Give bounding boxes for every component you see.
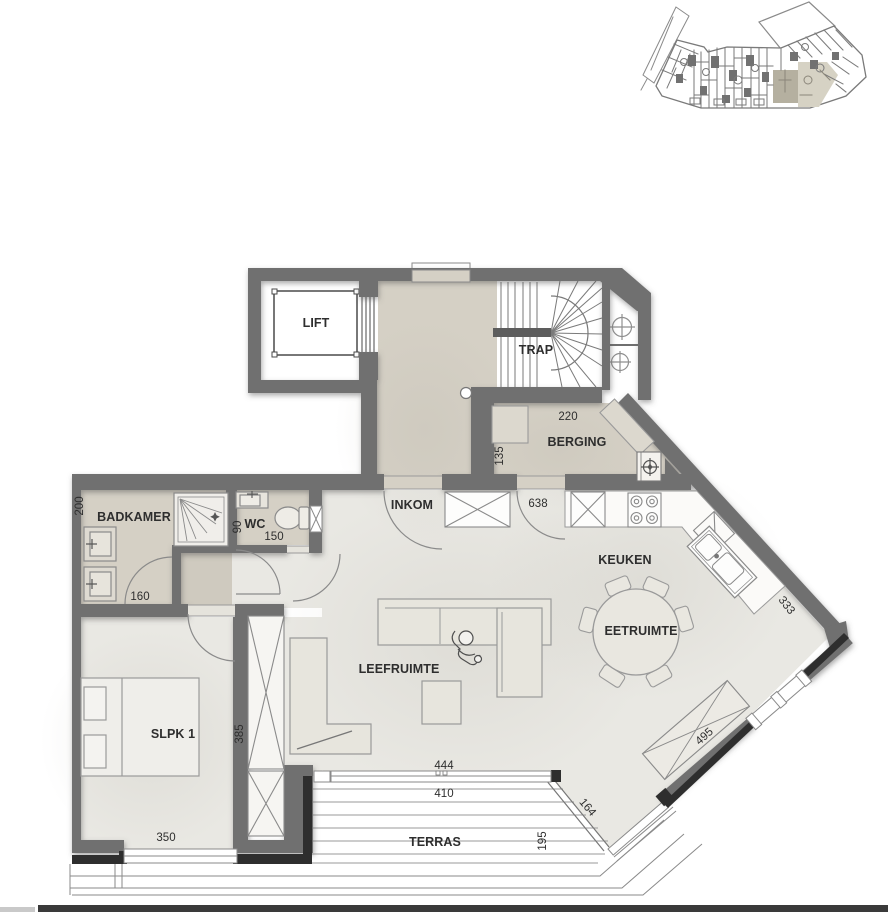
svg-text:160: 160 <box>130 591 149 603</box>
svg-text:WC: WC <box>244 517 265 531</box>
svg-text:135: 135 <box>494 446 506 465</box>
svg-text:385: 385 <box>234 724 246 743</box>
svg-text:90: 90 <box>232 521 244 534</box>
svg-text:EETRUIMTE: EETRUIMTE <box>604 624 677 638</box>
svg-text:350: 350 <box>156 832 175 844</box>
svg-text:444: 444 <box>434 760 454 772</box>
svg-text:LIFT: LIFT <box>303 316 330 330</box>
svg-text:LEEFRUIMTE: LEEFRUIMTE <box>359 662 440 676</box>
svg-text:150: 150 <box>264 531 283 543</box>
svg-text:410: 410 <box>434 788 453 800</box>
svg-text:BERGING: BERGING <box>547 435 606 449</box>
svg-text:SLPK 1: SLPK 1 <box>151 727 195 741</box>
svg-text:220: 220 <box>558 411 577 423</box>
svg-text:638: 638 <box>528 498 547 510</box>
svg-text:TERRAS: TERRAS <box>409 835 461 849</box>
svg-text:195: 195 <box>537 831 549 850</box>
svg-text:KEUKEN: KEUKEN <box>598 553 651 567</box>
svg-text:200: 200 <box>74 496 86 515</box>
svg-text:BADKAMER: BADKAMER <box>97 510 171 524</box>
svg-text:INKOM: INKOM <box>391 498 433 512</box>
svg-text:TRAP: TRAP <box>519 343 553 357</box>
